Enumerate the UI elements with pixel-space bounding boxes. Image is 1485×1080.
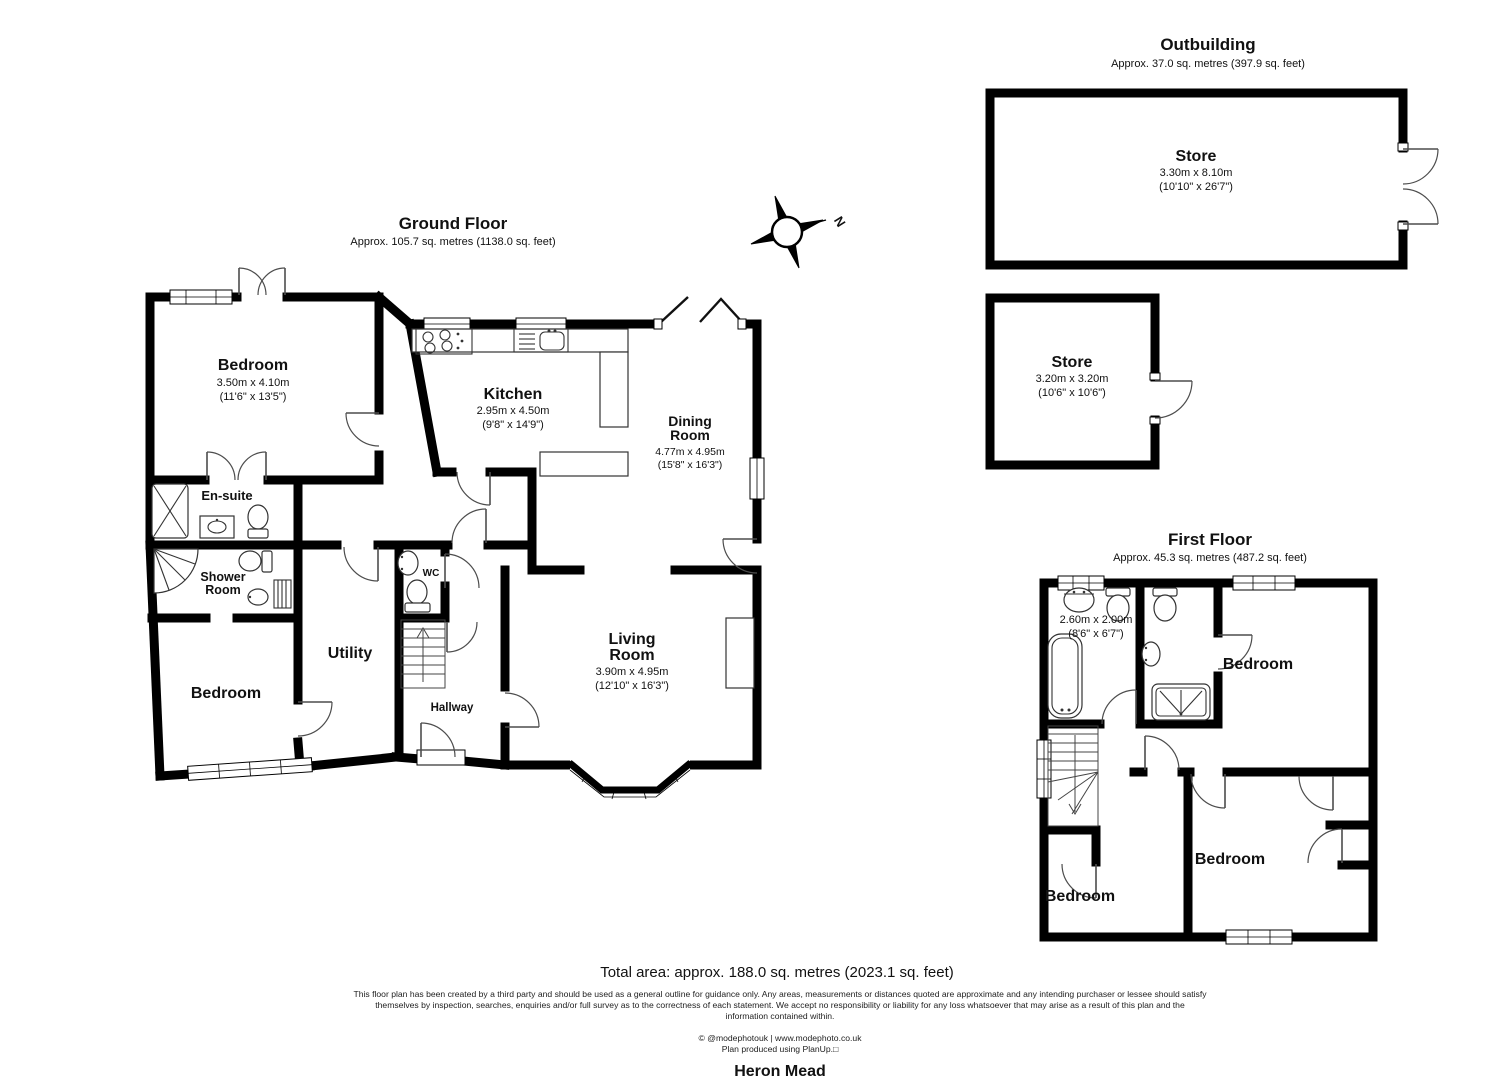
hallway-label: Hallway: [431, 702, 474, 714]
store2-dim-imperial: (10'6" x 10'6"): [1038, 387, 1106, 399]
bedroom1-french-doors: [239, 268, 285, 295]
bath-icon: [1048, 634, 1082, 718]
kitchen-label: Kitchen: [484, 386, 543, 403]
ff-bedroom3-window: [1226, 930, 1292, 944]
ff-bedroom3-door: [1191, 774, 1225, 808]
utility-label: Utility: [328, 645, 373, 662]
living-dim-imperial: (12'10" x 16'3"): [595, 680, 669, 692]
dining-dim-metric: 4.77m x 4.95m: [655, 446, 725, 458]
credit-text: © @modephotouk | www.modephoto.co.uk: [699, 1033, 863, 1043]
ff-bedroom1-window: [1233, 576, 1295, 590]
patio-door-open-leaves: [654, 297, 746, 329]
wardrobe-door-1: [1299, 776, 1333, 810]
outbuilding-area: Approx. 37.0 sq. metres (397.9 sq. feet): [1111, 58, 1305, 70]
dining-label-2: Room: [670, 427, 710, 443]
ensuite-sink-icon: [200, 516, 234, 538]
shower-room-sink-icon: [248, 589, 268, 605]
bedroom1-door: [346, 413, 379, 446]
store2-dim-metric: 3.20m x 3.20m: [1036, 373, 1109, 385]
living-dim-metric: 3.90m x 4.95m: [596, 666, 669, 678]
ff-bath-dim-metric: 2.60m x 2.00m: [1060, 614, 1133, 626]
wc-label: WC: [423, 568, 440, 579]
outbuilding-title: Outbuilding: [1160, 35, 1255, 54]
ff-shower-tray-icon: [1152, 684, 1210, 720]
shower-room-toilet-icon: [239, 551, 272, 572]
footer: Total area: approx. 188.0 sq. metres (20…: [353, 964, 1207, 1080]
north-label: N: [831, 214, 849, 230]
bathroom-sink-icon: [1064, 588, 1094, 612]
front-door-threshold: [417, 750, 465, 765]
ground-floor-plan: Ground Floor Approx. 105.7 sq. metres (1…: [150, 214, 764, 799]
ff-bedroom1-label: Bedroom: [1223, 656, 1293, 673]
first-floor-stairs: [1048, 726, 1098, 826]
bay-window: [570, 760, 690, 799]
total-area-text: Total area: approx. 188.0 sq. metres (20…: [600, 964, 954, 981]
living-label-1: Living: [608, 631, 655, 648]
ensuite-toilet-icon: [248, 505, 268, 538]
wc-door: [445, 554, 479, 588]
kitchen-dim-imperial: (9'8" x 14'9"): [482, 419, 544, 431]
store1-dim-imperial: (10'10" x 26'7"): [1159, 181, 1233, 193]
ensuite-shower-icon: [152, 484, 188, 538]
ground-stairs: [401, 620, 445, 688]
compass-rose-icon: N: [751, 196, 849, 268]
ff-bedroom3-label: Bedroom: [1195, 851, 1265, 868]
first-floor-area: Approx. 45.3 sq. metres (487.2 sq. feet): [1113, 552, 1307, 564]
hallway-inner-door: [452, 509, 486, 543]
first-floor-plan: First Floor Approx. 45.3 sq. metres (487…: [1037, 530, 1373, 944]
disclaimer-line-3: information contained within.: [726, 1011, 835, 1021]
ensuite-label: En-suite: [201, 488, 252, 503]
wc-sink-icon: [398, 551, 418, 575]
store1-dim-metric: 3.30m x 8.10m: [1160, 167, 1233, 179]
gf-bedroom2-label: Bedroom: [191, 685, 261, 702]
shower-room-label-1: Shower: [200, 570, 245, 584]
ground-floor-title: Ground Floor: [399, 214, 508, 233]
gf-bedroom1-dim-imperial: (11'6" x 13'5"): [220, 391, 287, 403]
chimney-breast: [726, 618, 754, 688]
ff-toilet-icon: [1153, 588, 1177, 621]
wardrobe-door-2: [1308, 829, 1342, 863]
ff-bath-dim-imperial: (8'6" x 6'7"): [1068, 628, 1123, 640]
ff-bedroom2-label: Bedroom: [1045, 888, 1115, 905]
living-label-2: Room: [609, 647, 654, 664]
utility-door: [344, 547, 378, 581]
dining-window: [750, 458, 764, 499]
bedroom2-door: [298, 702, 332, 736]
store1-label: Store: [1176, 148, 1217, 165]
dining-dim-imperial: (15'8" x 16'3"): [658, 459, 723, 471]
property-name: Heron Mead: [734, 1063, 826, 1080]
disclaimer-line-2: themselves by inspection, searches, enqu…: [375, 1000, 1185, 1010]
kitchen-dim-metric: 2.95m x 4.50m: [477, 405, 550, 417]
outbuilding-double-door: [1398, 143, 1438, 230]
radiator-icon: [274, 580, 291, 608]
disclaimer-line-1: This floor plan has been created by a th…: [353, 989, 1207, 999]
floorplan-drawing: Outbuilding Approx. 37.0 sq. metres (397…: [0, 0, 1485, 1080]
ff-sink-icon: [1142, 642, 1160, 666]
landing-window: [1037, 740, 1051, 798]
kitchen-door: [457, 472, 490, 505]
ff-bedroom2-landing-door: [1145, 736, 1179, 770]
floorplan-page: Outbuilding Approx. 37.0 sq. metres (397…: [0, 0, 1485, 1080]
gf-bedroom1-label: Bedroom: [218, 357, 288, 374]
ensuite-double-doors: [207, 452, 266, 480]
outbuilding-plan: Outbuilding Approx. 37.0 sq. metres (397…: [990, 35, 1438, 465]
gf-bedroom1-dim-metric: 3.50m x 4.10m: [217, 377, 290, 389]
bathroom-door: [1102, 690, 1136, 724]
shower-room-label-2: Room: [205, 583, 240, 597]
understairs-door: [447, 622, 477, 652]
first-floor-title: First Floor: [1168, 530, 1252, 549]
ground-floor-area: Approx. 105.7 sq. metres (1138.0 sq. fee…: [350, 236, 555, 248]
living-room-door: [505, 693, 539, 727]
wc-toilet-icon: [405, 580, 430, 612]
produced-text: Plan produced using PlanUp.□: [722, 1044, 839, 1054]
bedroom1-window: [170, 290, 232, 304]
bedroom2-window: [188, 758, 313, 781]
corner-shower-icon: [154, 549, 198, 593]
store2-label: Store: [1052, 354, 1093, 371]
